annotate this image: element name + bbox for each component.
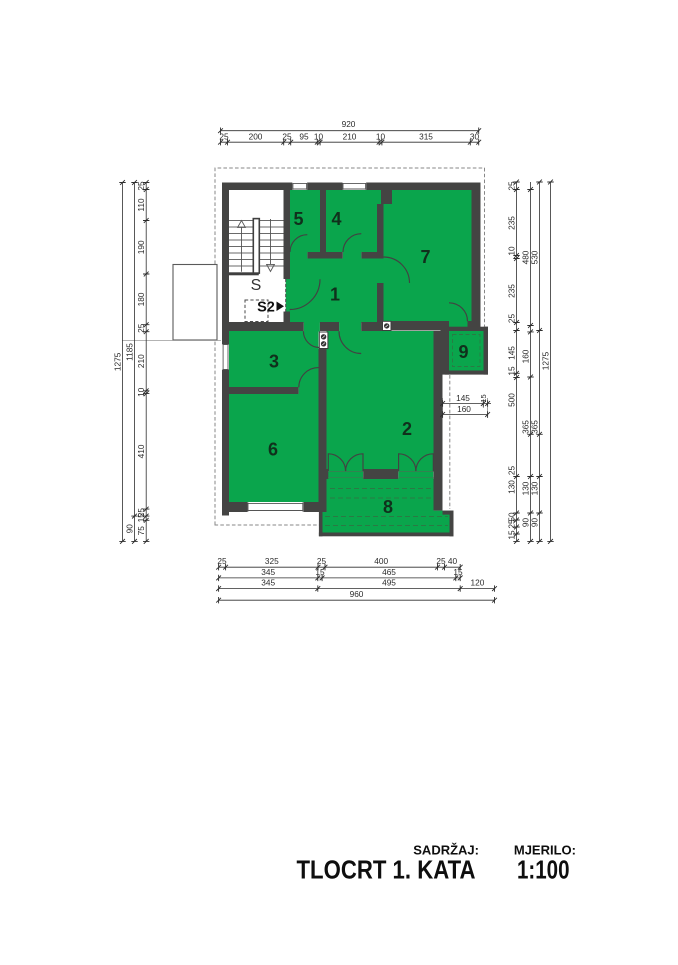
svg-text:190: 190 <box>136 240 146 254</box>
svg-text:95: 95 <box>299 132 309 142</box>
svg-text:25: 25 <box>506 314 516 324</box>
svg-text:8: 8 <box>383 497 393 517</box>
svg-text:9: 9 <box>458 342 468 362</box>
svg-text:960: 960 <box>350 589 364 599</box>
svg-text:130: 130 <box>506 480 516 494</box>
svg-text:145: 145 <box>456 393 470 403</box>
svg-text:1275: 1275 <box>112 352 122 371</box>
svg-text:1:100: 1:100 <box>517 855 570 885</box>
svg-text:3: 3 <box>269 352 279 372</box>
svg-text:410: 410 <box>136 444 146 458</box>
svg-text:210: 210 <box>136 354 146 368</box>
svg-text:345: 345 <box>261 567 275 577</box>
svg-text:25: 25 <box>506 466 516 476</box>
svg-text:495: 495 <box>382 578 396 588</box>
svg-text:10: 10 <box>506 246 516 256</box>
svg-text:110: 110 <box>136 198 146 212</box>
svg-text:465: 465 <box>382 567 396 577</box>
svg-text:6: 6 <box>268 440 278 460</box>
svg-text:S: S <box>251 277 262 294</box>
svg-text:400: 400 <box>374 556 388 566</box>
svg-text:920: 920 <box>342 119 356 129</box>
svg-text:25: 25 <box>282 132 292 142</box>
svg-text:10: 10 <box>376 132 386 142</box>
svg-text:25: 25 <box>219 132 229 142</box>
svg-text:25: 25 <box>317 556 327 566</box>
svg-text:180: 180 <box>136 292 146 306</box>
svg-text:15: 15 <box>136 513 146 523</box>
svg-text:40: 40 <box>448 556 458 566</box>
svg-text:25: 25 <box>136 323 146 333</box>
svg-text:10: 10 <box>136 387 146 397</box>
svg-text:90: 90 <box>529 518 539 528</box>
svg-text:75: 75 <box>136 526 146 536</box>
svg-text:1275: 1275 <box>540 351 550 370</box>
svg-text:130: 130 <box>529 481 539 495</box>
svg-text:4: 4 <box>331 209 341 229</box>
svg-text:15: 15 <box>315 567 325 577</box>
svg-text:25: 25 <box>217 556 227 566</box>
svg-text:530: 530 <box>529 250 539 264</box>
svg-text:200: 200 <box>249 132 263 142</box>
svg-text:1: 1 <box>330 285 340 305</box>
svg-text:15: 15 <box>506 366 516 376</box>
svg-text:S2: S2 <box>257 300 275 316</box>
svg-text:15: 15 <box>453 567 463 577</box>
svg-text:90: 90 <box>124 524 134 534</box>
svg-text:145: 145 <box>506 346 516 360</box>
svg-text:15: 15 <box>479 394 488 402</box>
svg-text:325: 325 <box>265 556 279 566</box>
svg-text:345: 345 <box>261 578 275 588</box>
svg-text:315: 315 <box>419 132 433 142</box>
svg-text:235: 235 <box>506 216 516 230</box>
svg-text:5: 5 <box>293 209 303 229</box>
svg-text:2: 2 <box>402 419 412 439</box>
svg-text:365: 365 <box>529 420 539 434</box>
svg-text:1185: 1185 <box>124 343 134 361</box>
svg-text:TLOCRT 1. KATA: TLOCRT 1. KATA <box>297 855 476 885</box>
svg-text:500: 500 <box>506 393 516 407</box>
svg-text:120: 120 <box>470 578 484 588</box>
svg-text:30: 30 <box>470 132 480 142</box>
svg-text:25: 25 <box>506 181 516 191</box>
svg-text:160: 160 <box>457 404 471 414</box>
svg-text:10: 10 <box>314 132 324 142</box>
svg-text:235: 235 <box>506 284 516 298</box>
svg-text:160: 160 <box>520 349 530 363</box>
svg-text:25: 25 <box>436 556 446 566</box>
svg-text:25: 25 <box>506 519 516 529</box>
svg-text:210: 210 <box>343 132 357 142</box>
svg-text:15: 15 <box>506 530 516 540</box>
svg-text:7: 7 <box>420 247 430 267</box>
